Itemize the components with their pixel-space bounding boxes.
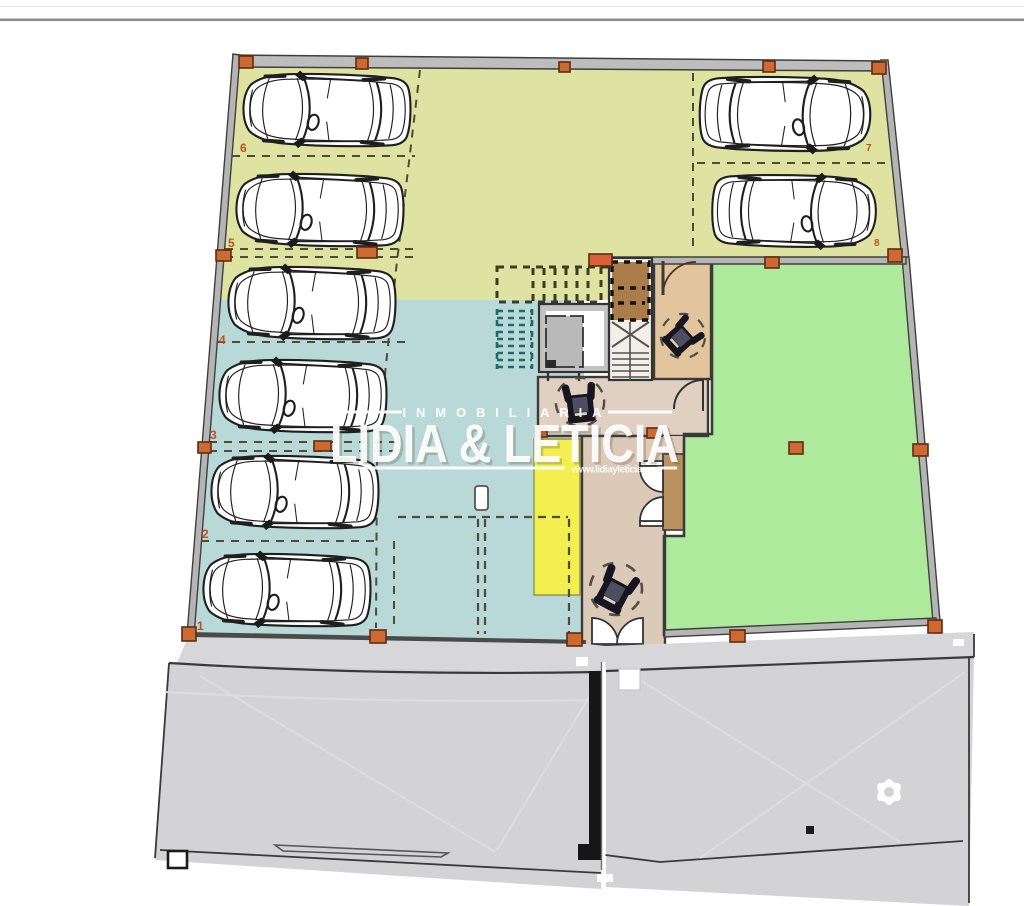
svg-text:5: 5 bbox=[228, 236, 235, 250]
svg-text:1: 1 bbox=[197, 619, 204, 633]
svg-text:3: 3 bbox=[210, 428, 217, 442]
svg-text:4: 4 bbox=[219, 333, 226, 347]
svg-text:2: 2 bbox=[202, 527, 209, 541]
svg-text:www.lidiayleticia.es: www.lidiayleticia.es bbox=[571, 465, 655, 476]
svg-text:8: 8 bbox=[874, 238, 880, 249]
svg-text:6: 6 bbox=[240, 141, 247, 155]
svg-text:7: 7 bbox=[866, 143, 872, 154]
